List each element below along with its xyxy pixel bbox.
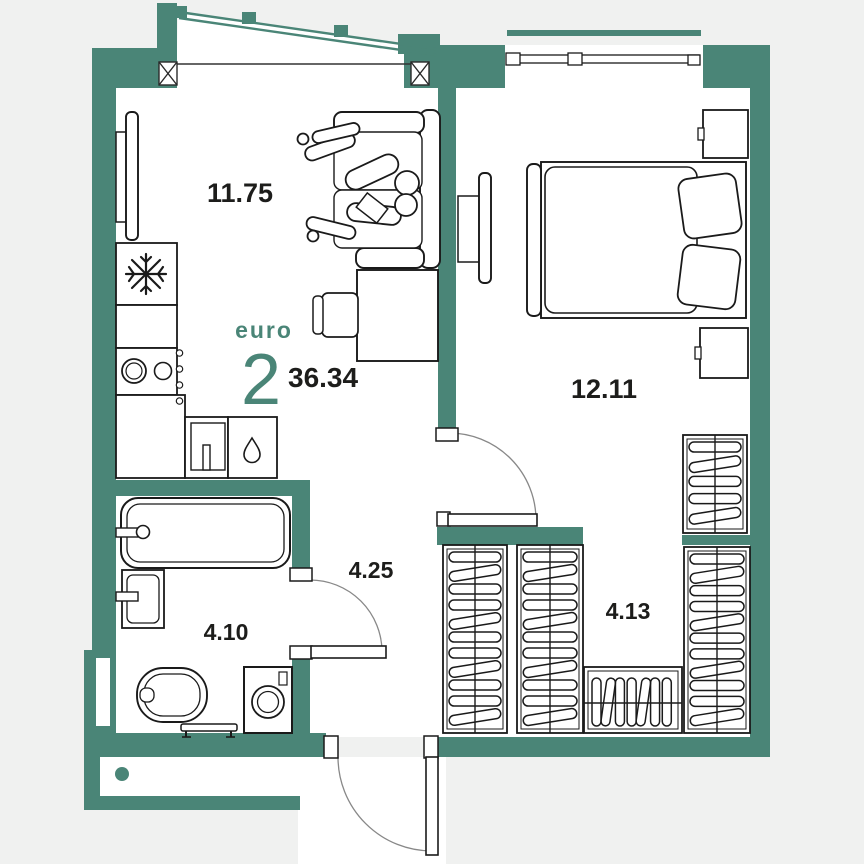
- door-jamb: [290, 568, 312, 581]
- wall-vestibule-bottom: [84, 796, 300, 810]
- bedroom-window: [506, 53, 700, 65]
- bathroom-area-label: 4.10: [204, 619, 249, 645]
- pillow: [677, 172, 743, 239]
- nightstand-knob: [698, 128, 704, 140]
- unit-total-area: 36.34: [288, 362, 358, 393]
- person-foot: [308, 231, 319, 242]
- vestibule-floor: [100, 757, 300, 796]
- unit-rooms-count: 2: [241, 340, 281, 420]
- nightstand: [703, 110, 748, 158]
- table: [357, 270, 438, 361]
- wall-bathroom-right-lower: [292, 658, 310, 737]
- bed-footboard: [527, 164, 541, 316]
- door-jamb: [424, 736, 438, 758]
- bathtub-faucet: [116, 528, 138, 537]
- wall-left: [92, 88, 116, 737]
- living-room-area-label: 11.75: [207, 178, 273, 208]
- window-ledge-strip: [507, 30, 701, 36]
- door-jamb: [324, 736, 338, 758]
- kitchen-corner-counter: [116, 395, 185, 478]
- hallway-area-label: 4.25: [349, 557, 394, 583]
- floor-plan: 11.75 12.11 4.25 4.10 4.13 euro 2 36.34: [0, 0, 864, 864]
- wall-bedroom-south-right: [682, 535, 750, 545]
- bedroom-door-leaf: [448, 514, 537, 526]
- bed-duvet: [545, 167, 697, 313]
- nightstand: [700, 328, 748, 378]
- person-head: [395, 171, 419, 195]
- tv-living-room: [126, 112, 138, 240]
- wall-right: [750, 45, 770, 757]
- entry-door-swing-zone: [298, 757, 446, 864]
- wall-bottom-left: [92, 733, 326, 757]
- bedroom-window-opening: [505, 45, 703, 88]
- vestibule-dot: [115, 767, 129, 781]
- tv-bracket: [458, 196, 480, 262]
- kitchen-counter: [116, 305, 177, 348]
- washbasin-faucet: [116, 592, 138, 601]
- pillow: [677, 244, 742, 311]
- wall-bedroom-south-left: [437, 527, 583, 545]
- chair-back: [313, 296, 323, 334]
- wall-balcony-left-post: [157, 3, 177, 51]
- floor-plan-page: 11.75 12.11 4.25 4.10 4.13 euro 2 36.34: [0, 0, 864, 864]
- bedroom-area-label: 12.11: [571, 374, 637, 404]
- chair-seat: [322, 293, 358, 337]
- washer-drawer: [279, 672, 287, 685]
- wall-bottom-right: [438, 737, 770, 757]
- bathroom-door-leaf: [311, 646, 386, 658]
- sofa-back: [420, 110, 440, 268]
- entrance-door-leaf: [426, 757, 438, 855]
- wall-bathroom-top: [116, 480, 310, 496]
- wall-niche: [96, 658, 110, 726]
- door-jamb: [436, 428, 458, 441]
- nightstand-knob: [695, 347, 701, 359]
- person-foot: [298, 134, 309, 145]
- person-head: [395, 194, 417, 216]
- door-jamb: [290, 646, 312, 659]
- burner-small: [155, 363, 172, 380]
- toilet-flush: [140, 688, 154, 702]
- tv-bedroom: [479, 173, 491, 283]
- snowflake-icon: [126, 254, 166, 294]
- dressing-area-label: 4.13: [606, 598, 651, 624]
- bathtub-inner: [127, 504, 284, 562]
- sofa-armrest-bottom: [356, 248, 424, 268]
- sink-faucet: [203, 445, 210, 470]
